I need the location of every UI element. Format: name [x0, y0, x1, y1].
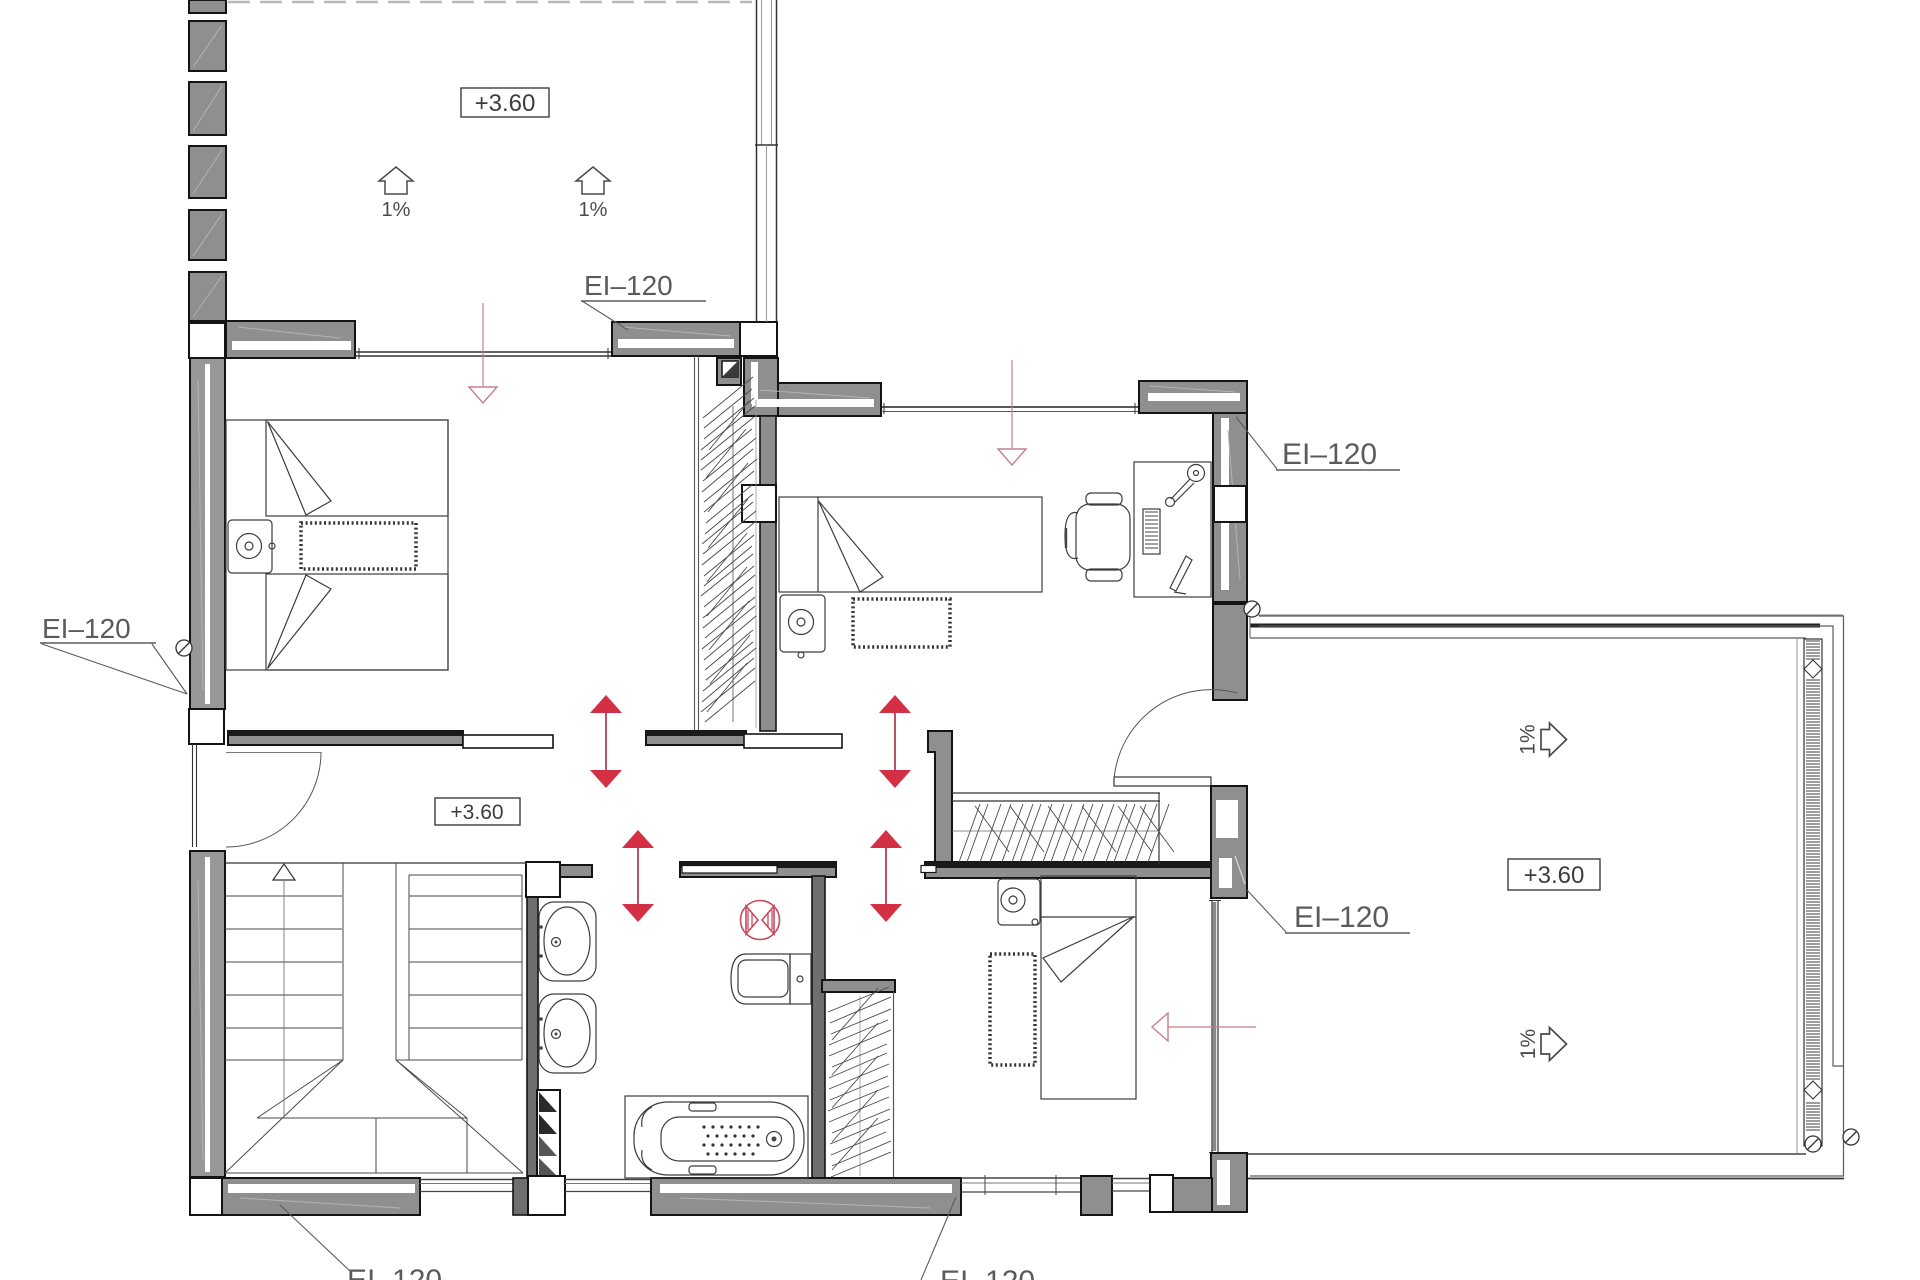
svg-text:EI–120: EI–120 [347, 1264, 442, 1280]
svg-text:EI–120: EI–120 [1282, 438, 1377, 471]
svg-text:+3.60: +3.60 [450, 801, 503, 824]
svg-text:EI–120: EI–120 [42, 613, 131, 644]
svg-text:+3.60: +3.60 [475, 90, 536, 117]
svg-text:1%: 1% [1517, 1029, 1540, 1059]
svg-text:+3.60: +3.60 [1524, 862, 1585, 889]
svg-text:1%: 1% [382, 199, 411, 221]
svg-text:1%: 1% [1517, 724, 1540, 754]
svg-text:1%: 1% [579, 199, 608, 221]
svg-text:EI–120: EI–120 [584, 270, 673, 301]
svg-text:EI–120: EI–120 [1294, 901, 1389, 934]
svg-text:EI–120: EI–120 [940, 1265, 1035, 1280]
